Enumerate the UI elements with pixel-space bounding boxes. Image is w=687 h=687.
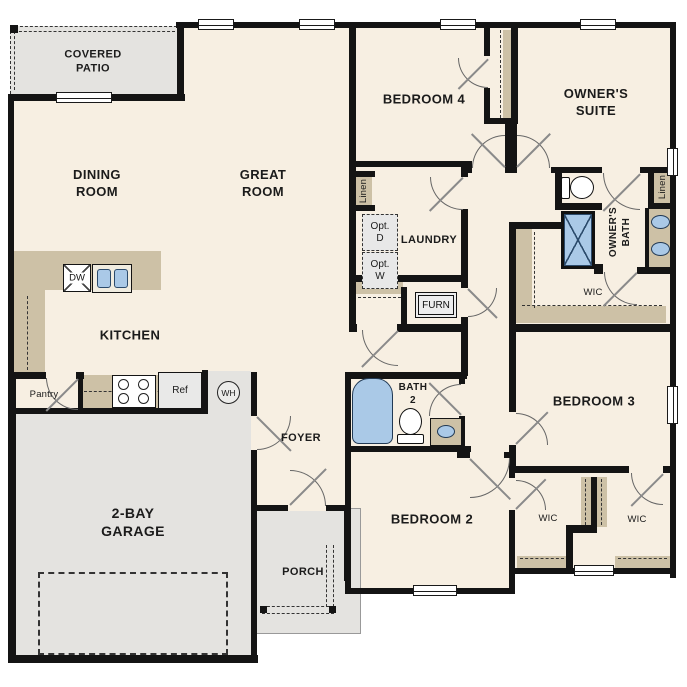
label-linen-hall: Linen (358, 179, 370, 203)
wall-wic-step-v (566, 533, 573, 568)
door-wic-left (516, 480, 546, 510)
owners-wic-shelf-bottom (516, 306, 666, 323)
label-bedroom2: BEDROOM 2 (391, 512, 473, 529)
owners-toilet-tank (561, 177, 570, 199)
bath2-toilet-tank (397, 434, 424, 444)
label-kitchen: KITCHEN (100, 328, 161, 345)
water-heater: WH (217, 381, 240, 404)
kitchen-sink (92, 264, 132, 293)
owners-wic-shelf-dash-v (534, 232, 535, 308)
door-owners-wic (604, 272, 637, 305)
wall-right-exterior (670, 22, 676, 578)
refrigerator-label: Ref (172, 385, 188, 396)
wic-divider-dash-right (601, 479, 602, 525)
hall-closet-shelf-dash (353, 297, 401, 298)
porch-dashed-line-1 (262, 606, 334, 607)
wall-bedroom2-left (345, 372, 351, 594)
window-owners-bath (667, 148, 678, 176)
label-wic-right: WIC (627, 514, 646, 526)
label-bath2: BATH 2 (399, 381, 428, 407)
owners-shower (561, 211, 595, 269)
door-hall-closet (362, 330, 398, 366)
wall-linen-bottom (353, 205, 375, 211)
door-bedroom4-closet (458, 58, 488, 88)
wall-under-toilet (555, 203, 602, 210)
window-greatroom-2 (299, 19, 335, 30)
owners-toilet-bowl (570, 176, 594, 199)
wall-owners-linen-west (648, 170, 654, 206)
label-laundry: LAUNDRY (401, 233, 457, 247)
window-bedroom4 (440, 19, 476, 30)
opening-wic-right (629, 466, 663, 473)
wall-vanity-south (645, 267, 676, 274)
porch-dashed-line-3 (326, 545, 327, 607)
door-laundry (430, 177, 463, 210)
window-bedroom2 (413, 585, 457, 596)
wall-nook-left (202, 370, 208, 414)
door-furn-closet (468, 288, 497, 317)
label-covered-patio: COVERED PATIO (64, 48, 121, 77)
owners-sink-1 (651, 215, 670, 229)
label-linen-owners: Linen (657, 175, 669, 199)
wic-divider-dash-left (585, 479, 586, 525)
opening-bedroom3 (509, 412, 516, 445)
label-porch: PORCH (282, 565, 324, 579)
stove-burner (138, 393, 149, 404)
kitchen-sink-basin-right (114, 269, 128, 288)
kitchen-sink-basin-left (97, 269, 111, 288)
refrigerator: Ref (158, 372, 202, 409)
wall-pantry-post (78, 372, 83, 410)
wall-vanity-edge (645, 208, 649, 270)
wall-owners-wic-south (509, 324, 676, 332)
wall-linen-top (353, 171, 375, 177)
kitchen-counter-left (14, 251, 45, 375)
wall-garage-left (8, 379, 16, 663)
owners-wic-shelf-dash-h (522, 305, 662, 306)
door-bedroom3 (516, 413, 548, 445)
label-bedroom3: BEDROOM 3 (553, 394, 635, 411)
opening-furn (461, 288, 468, 317)
label-owners-wic: WIC (583, 287, 602, 299)
wall-furn-west (401, 287, 407, 324)
label-great-room: GREAT ROOM (240, 167, 287, 201)
dishwasher: DW (63, 264, 91, 292)
wic-divider-shelf-left (581, 477, 591, 527)
stove (112, 375, 156, 408)
wall-garage-bottom (8, 655, 258, 663)
window-greatroom-1 (198, 19, 234, 30)
owners-sink-2 (651, 242, 670, 256)
patio-corner-post (10, 25, 18, 33)
wall-shower-corner-post (594, 264, 603, 274)
bath2-toilet-bowl (399, 408, 422, 435)
window-wic (574, 565, 614, 576)
water-heater-label: WH (221, 388, 235, 398)
wall-patio-right (177, 24, 184, 98)
door-front-entry (290, 470, 326, 506)
label-pantry: Pantry (30, 389, 59, 401)
porch-dashed-line-4 (333, 545, 334, 607)
label-dining-room: DINING ROOM (73, 167, 121, 201)
door-bath2 (429, 384, 461, 416)
window-owners-suite (580, 19, 616, 30)
label-wic-left: WIC (538, 513, 557, 525)
bedroom4-closet-rod-dash (500, 30, 501, 118)
stove-burner (118, 379, 129, 390)
door-bedroom4 (472, 135, 505, 168)
optional-washer-box: Opt. W (362, 252, 398, 289)
label-owners-bath: OWNER'S BATH (607, 207, 633, 257)
garage-door-outline (38, 572, 228, 655)
wall-linen-vanity-divider (648, 203, 676, 209)
porch-post-left (260, 606, 267, 613)
bath2-tub (352, 378, 393, 444)
wall-wic-door-post (637, 267, 646, 274)
wall-alcove-south (511, 222, 563, 229)
door-owners-suite (517, 135, 550, 168)
wall-bedroom4-bottom (349, 161, 472, 167)
wall-wic-step-h (566, 525, 597, 533)
furnace-label: FURN (418, 295, 454, 315)
bath2-sink (437, 425, 455, 438)
door-bedroom2 (470, 458, 510, 498)
window-bedroom3 (667, 386, 678, 424)
label-garage: 2-BAY GARAGE (101, 504, 165, 540)
wall-bedroom3-west (509, 332, 516, 466)
wall-owners-west-upper (511, 22, 518, 124)
optional-dryer-box: Opt. D (362, 214, 398, 251)
label-owners-suite: OWNER'S SUITE (564, 86, 628, 120)
furnace: FURN (415, 292, 457, 318)
wic-right-shelf-dash (618, 558, 667, 559)
label-bedroom4: BEDROOM 4 (383, 92, 465, 109)
floor-plan: DW Ref WH Opt. D Opt. W FURN COVERED PAT… (0, 0, 687, 687)
wall-owners-wic-west (509, 222, 516, 332)
kitchen-counter-left-dash (27, 296, 28, 370)
dishwasher-label: DW (68, 273, 86, 284)
door-owners-bath (603, 173, 640, 210)
label-foyer: FOYER (281, 431, 321, 445)
wall-left-exterior (8, 94, 14, 379)
wic-divider-shelf-right (597, 477, 607, 527)
wall-greatroom-east-spine (349, 22, 356, 282)
wic-left-shelf-dash (520, 558, 564, 559)
porch-post-right (329, 606, 336, 613)
stove-burner (118, 393, 129, 404)
wall-hallcloset-west (349, 282, 356, 330)
wall-bath2-bottom (345, 446, 471, 452)
window-patio (56, 92, 112, 103)
stove-burner (138, 379, 149, 390)
door-wic-right (631, 473, 663, 505)
porch-dashed-line-2 (262, 613, 334, 614)
